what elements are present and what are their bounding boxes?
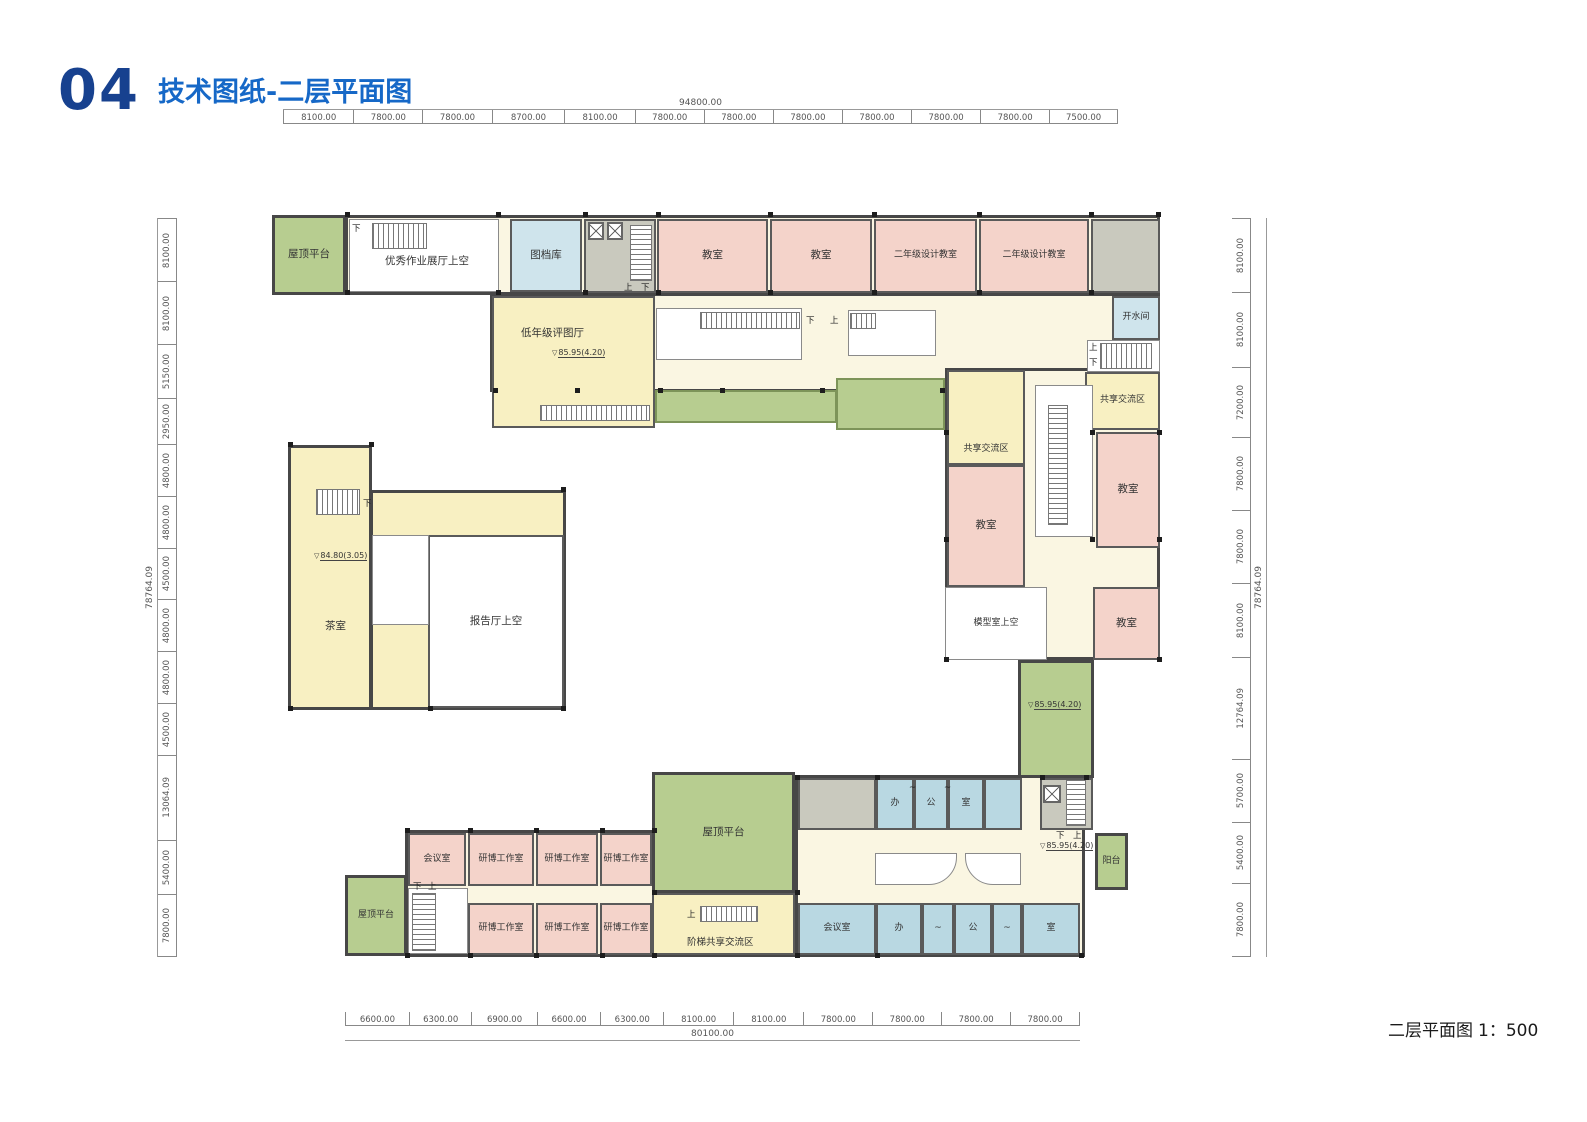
column-marker <box>977 212 982 217</box>
room-label: 研博工作室 <box>544 855 589 865</box>
column-marker <box>720 388 725 393</box>
column-marker <box>428 706 433 711</box>
dim-segment-value: 7800.00 <box>1236 529 1246 564</box>
dim-segment-value: 4500.00 <box>162 712 172 747</box>
elevation-value: 85.95(4.20) <box>558 348 605 358</box>
dimension-top-total: 94800.00 <box>283 98 1118 110</box>
dim-segment: 6600.00 <box>538 1012 602 1025</box>
room-roof-terrace-nw: 屋顶平台 <box>272 215 346 295</box>
dim-segment-value: 6900.00 <box>487 1015 522 1025</box>
dimension-left-total-label: 78764.09 <box>145 566 155 609</box>
room-label: ~ <box>934 924 942 934</box>
scale-note: 二层平面图1：500 <box>1388 1016 1543 1041</box>
dimension-bottom-total: 80100.00 <box>345 1029 1080 1041</box>
column-marker <box>561 706 566 711</box>
dim-segment: 8100.00 <box>664 1012 734 1025</box>
stair-icon <box>412 893 436 951</box>
small-void-room <box>372 535 429 625</box>
room-label-tea-room: 茶室 <box>325 618 346 633</box>
room-label: 公 <box>968 924 977 934</box>
room-label-stepped-shared-zone: 阶梯共享交流区 <box>687 934 754 948</box>
column-marker <box>977 290 982 295</box>
dim-segment: 8100.00 <box>283 110 354 123</box>
stair-icon <box>850 313 876 329</box>
stair-down-label: 下 <box>1056 829 1065 841</box>
room-label: 教室 <box>976 520 997 532</box>
dim-segment: 7800.00 <box>774 110 843 123</box>
dim-segment: 7800.00 <box>1232 884 1250 957</box>
column-marker <box>875 775 880 780</box>
column-marker <box>768 290 773 295</box>
dim-segment-value: 6300.00 <box>423 1015 458 1025</box>
dimension-top: 94800.00 8100.007800.007800.008700.00810… <box>283 98 1118 124</box>
stair-icon <box>700 312 800 329</box>
dimension-right: 8100.008100.007200.007800.007800.008100.… <box>1232 218 1267 957</box>
dim-segment-value: 7800.00 <box>162 908 172 943</box>
green-roof-band-1 <box>655 390 837 423</box>
dimension-left: 78764.09 8100.008100.005150.002950.00480… <box>142 218 177 957</box>
stair-icon <box>540 405 650 421</box>
column-marker <box>1084 775 1089 780</box>
dim-segment-value: 7800.00 <box>371 113 406 123</box>
tea-room-west-strip <box>288 445 372 710</box>
dimension-bottom: 6600.006300.006900.006600.006300.008100.… <box>345 1012 1080 1041</box>
elevation-triangle-icon: ▽ <box>1040 842 1045 850</box>
elevation-mark: ▽85.95(4.20) <box>552 348 605 357</box>
dim-segment: 7800.00 <box>636 110 705 123</box>
dim-segment-value: 7800.00 <box>1027 1015 1062 1025</box>
dim-segment: 7800.00 <box>981 110 1050 123</box>
dim-segment-value: 12764.09 <box>1236 688 1246 729</box>
room-label: 室 <box>961 799 970 809</box>
dim-segment: 7800.00 <box>1011 1012 1080 1025</box>
column-marker <box>561 487 566 492</box>
room-label-exhibition: 优秀作业展厅上空 <box>385 253 469 268</box>
dim-segment: 2950.00 <box>158 399 176 445</box>
dim-segment-value: 7800.00 <box>721 113 756 123</box>
column-marker <box>1157 537 1162 542</box>
column-marker <box>468 828 473 833</box>
room-label: 模型室上空 <box>973 619 1018 629</box>
dim-segment-value: 6600.00 <box>360 1015 395 1025</box>
stair-down-label: 下 <box>641 281 650 293</box>
stair-down-label: 下 <box>363 497 372 509</box>
dim-segment: 8100.00 <box>158 218 176 282</box>
dim-segment: 5400.00 <box>1232 823 1250 885</box>
dimension-left-total: 78764.09 <box>142 218 158 957</box>
stair-icon <box>1048 405 1068 525</box>
dim-segment: 4800.00 <box>158 445 176 497</box>
column-marker <box>288 706 293 711</box>
room-label: 报告厅上空 <box>470 616 523 628</box>
stair-icon <box>316 489 360 515</box>
room-studio-4: 研博工作室 <box>468 903 534 955</box>
dim-segment: 8100.00 <box>1232 218 1250 293</box>
stair-down-label: 下 <box>1089 356 1098 368</box>
door-swing-mark: ~ <box>909 783 916 793</box>
dim-segment-value: 7800.00 <box>652 113 687 123</box>
dim-segment: 7800.00 <box>423 110 492 123</box>
dim-segment: 4800.00 <box>158 497 176 549</box>
elevation-triangle-icon: ▽ <box>552 349 557 357</box>
room-label: 二年级设计教室 <box>1002 251 1065 261</box>
room-label: 研博工作室 <box>478 924 523 934</box>
dim-segment-value: 7800.00 <box>821 1015 856 1025</box>
dim-segment-value: 8100.00 <box>1236 238 1246 273</box>
room-label: 开水间 <box>1122 313 1149 323</box>
dim-segment-value: 7200.00 <box>1236 385 1246 420</box>
column-marker <box>795 953 800 958</box>
floor-plan-page: 04 技术图纸-二层平面图 94800.00 8100.007800.00780… <box>0 0 1587 1122</box>
column-marker <box>656 212 661 217</box>
room-water-room: 开水间 <box>1112 296 1160 340</box>
elevation-mark: ▽85.95(4.20) <box>1040 841 1093 850</box>
room-label: 办 <box>894 924 903 934</box>
column-marker <box>405 953 410 958</box>
dim-segment: 5150.00 <box>158 345 176 398</box>
column-marker <box>493 388 498 393</box>
stair-up-label: 上 <box>1089 341 1098 353</box>
room-label: ~ <box>1003 924 1011 934</box>
hall-opening-1 <box>875 853 957 885</box>
dim-segment: 7800.00 <box>942 1012 1011 1025</box>
room-grade2-design-2: 二年级设计教室 <box>979 219 1089 293</box>
dim-segment-value: 8100.00 <box>1236 603 1246 638</box>
dim-segment: 4500.00 <box>158 704 176 755</box>
column-marker <box>600 953 605 958</box>
dim-segment: 7500.00 <box>1050 110 1118 123</box>
room-studio-5: 研博工作室 <box>536 903 598 955</box>
dim-segment: 8100.00 <box>158 282 176 345</box>
column-marker <box>345 290 350 295</box>
dim-segment-value: 4800.00 <box>162 660 172 695</box>
elevation-mark: ▽84.80(3.05) <box>314 551 367 560</box>
dim-segment-value: 4800.00 <box>162 453 172 488</box>
dim-segment: 8100.00 <box>1232 293 1250 367</box>
column-marker <box>795 890 800 895</box>
dim-segment: 7800.00 <box>1232 438 1250 511</box>
section-number: 04 <box>58 58 140 123</box>
scale-note-value: 1：500 <box>1478 1021 1538 1041</box>
dim-segment-value: 8100.00 <box>751 1015 786 1025</box>
dim-segment-value: 7800.00 <box>1236 456 1246 491</box>
room-roof-terrace-sw: 屋顶平台 <box>345 875 407 956</box>
room-classroom-3: 教室 <box>1096 432 1160 548</box>
column-marker <box>496 212 501 217</box>
dim-segment: 7800.00 <box>158 895 176 957</box>
column-marker <box>1157 430 1162 435</box>
elevator-icon <box>1043 785 1061 803</box>
room-label: 研博工作室 <box>603 924 648 934</box>
column-marker <box>656 290 661 295</box>
dim-segment-value: 7500.00 <box>1066 113 1101 123</box>
room-label: 室 <box>1046 924 1055 934</box>
column-marker <box>652 828 657 833</box>
dim-segment: 6300.00 <box>410 1012 473 1025</box>
room-office-6: ~ <box>922 903 954 955</box>
stair-up-label: 上 <box>624 281 633 293</box>
room-studio-6: 研博工作室 <box>600 903 652 955</box>
column-marker <box>1157 657 1162 662</box>
room-label: 研博工作室 <box>603 855 648 865</box>
column-marker <box>768 212 773 217</box>
green-roof-band-2 <box>836 378 945 430</box>
stair-down-label: 下 <box>806 314 815 326</box>
column-marker <box>575 388 580 393</box>
column-marker <box>369 442 374 447</box>
dimension-top-segments: 8100.007800.007800.008700.008100.007800.… <box>283 110 1118 124</box>
dim-segment-value: 4800.00 <box>162 505 172 540</box>
column-marker <box>944 430 949 435</box>
column-marker <box>583 212 588 217</box>
column-marker <box>534 953 539 958</box>
room-label: 教室 <box>702 250 723 262</box>
room-meeting-1: 会议室 <box>408 833 466 886</box>
dim-segment-value: 5400.00 <box>1236 835 1246 870</box>
dim-segment-value: 5150.00 <box>162 354 172 389</box>
dim-segment: 7800.00 <box>354 110 423 123</box>
stair-icon <box>1100 343 1152 369</box>
dimension-left-segments: 8100.008100.005150.002950.004800.004800.… <box>158 218 177 957</box>
room-shared-zone-e: 共享交流区 <box>947 370 1025 465</box>
dimension-right-segments: 8100.008100.007200.007800.007800.008100.… <box>1232 218 1251 957</box>
column-marker <box>820 388 825 393</box>
dim-segment: 13064.09 <box>158 756 176 841</box>
elevation-mark: ▽85.95(4.20) <box>1028 700 1081 709</box>
column-marker <box>875 953 880 958</box>
column-marker <box>872 290 877 295</box>
dim-segment-value: 8100.00 <box>1236 312 1246 347</box>
dim-segment: 7800.00 <box>873 1012 942 1025</box>
column-marker <box>534 828 539 833</box>
stair-up-label: 上 <box>687 908 696 920</box>
dimension-bottom-segments: 6600.006300.006900.006600.006300.008100.… <box>345 1012 1080 1026</box>
column-marker <box>795 775 800 780</box>
column-marker <box>872 212 877 217</box>
elevation-value: 85.95(4.20) <box>1046 841 1093 851</box>
room-office-8: ~ <box>992 903 1022 955</box>
room-studio-1: 研博工作室 <box>468 833 534 886</box>
column-marker <box>944 537 949 542</box>
column-marker <box>658 388 663 393</box>
room-label: 会议室 <box>823 924 850 934</box>
room-label: 共享交流区 <box>963 445 1008 455</box>
column-marker <box>652 890 657 895</box>
room-label: 会议室 <box>423 855 450 865</box>
stair-up-label: 上 <box>1073 829 1082 841</box>
room-label: 教室 <box>1116 618 1137 630</box>
room-balcony: 阳台 <box>1095 833 1128 890</box>
dim-segment-value: 7800.00 <box>890 1015 925 1025</box>
dim-segment-value: 2950.00 <box>162 404 172 439</box>
stair-icon <box>700 906 758 922</box>
room-label: 图档库 <box>530 250 562 262</box>
dim-segment-value: 5700.00 <box>1236 773 1246 808</box>
dim-segment: 7800.00 <box>843 110 912 123</box>
stair-icon <box>1066 780 1086 826</box>
stair-icon <box>630 225 652 281</box>
dim-segment-value: 4800.00 <box>162 608 172 643</box>
room-office-7: 公 <box>954 903 992 955</box>
room-label: 屋顶平台 <box>703 827 745 839</box>
room-label: 共享交流区 <box>1100 396 1145 406</box>
room-label: 教室 <box>1118 484 1139 496</box>
dim-segment: 4800.00 <box>158 652 176 704</box>
column-marker <box>940 388 945 393</box>
green-link-corridor <box>1018 660 1094 778</box>
dim-segment-value: 6600.00 <box>551 1015 586 1025</box>
dim-segment-value: 8100.00 <box>162 296 172 331</box>
stair-down-label: 下 <box>352 222 361 234</box>
room-shared-zone-ne: 共享交流区 <box>1085 372 1160 430</box>
room-classroom-5: 教室 <box>1093 587 1160 660</box>
dim-segment: 6900.00 <box>472 1012 537 1025</box>
column-marker <box>1090 430 1095 435</box>
door-swing-mark: ~ <box>944 783 951 793</box>
elevator-icon <box>588 222 604 240</box>
column-marker <box>405 828 410 833</box>
elevation-triangle-icon: ▽ <box>1028 701 1033 709</box>
room-model-room-void: 模型室上空 <box>945 587 1047 660</box>
room-roof-terrace-s: 屋顶平台 <box>652 772 795 893</box>
dim-segment: 7800.00 <box>705 110 774 123</box>
dim-segment: 12764.09 <box>1232 658 1250 760</box>
dim-segment: 7200.00 <box>1232 368 1250 438</box>
dim-segment-value: 8100.00 <box>162 233 172 268</box>
dim-segment: 6300.00 <box>601 1012 664 1025</box>
column-marker <box>496 290 501 295</box>
column-marker <box>345 212 350 217</box>
dim-segment-value: 13064.09 <box>162 777 172 818</box>
room-grade2-design-1: 二年级设计教室 <box>874 219 977 293</box>
toilet-core-south <box>798 778 876 830</box>
dim-segment-value: 7800.00 <box>928 113 963 123</box>
room-office-2: 公 <box>914 778 948 830</box>
dim-segment-value: 8100.00 <box>582 113 617 123</box>
room-label: 二年级设计教室 <box>894 251 957 261</box>
dim-segment-value: 7800.00 <box>859 113 894 123</box>
dim-segment: 5400.00 <box>158 841 176 895</box>
dim-segment-value: 5400.00 <box>162 850 172 885</box>
room-label: 屋顶平台 <box>358 911 394 921</box>
elevation-triangle-icon: ▽ <box>314 552 319 560</box>
dim-segment: 5700.00 <box>1232 760 1250 823</box>
stair-up-label: 上 <box>428 880 437 892</box>
stair-icon <box>372 223 427 249</box>
room-label: 教室 <box>811 250 832 262</box>
dim-segment: 6600.00 <box>345 1012 410 1025</box>
column-marker <box>583 290 588 295</box>
dim-segment: 8100.00 <box>565 110 635 123</box>
room-label: 办 <box>890 799 899 809</box>
dim-segment-value: 6300.00 <box>615 1015 650 1025</box>
stair-down-label: 下 <box>413 880 422 892</box>
elevator-icon <box>607 222 623 240</box>
dim-segment-value: 7800.00 <box>959 1015 994 1025</box>
column-marker <box>288 442 293 447</box>
dim-segment: 7800.00 <box>912 110 981 123</box>
dim-segment: 8700.00 <box>493 110 566 123</box>
room-classroom-1: 教室 <box>657 219 768 293</box>
column-marker <box>1089 290 1094 295</box>
room-label: 阳台 <box>1102 857 1120 867</box>
dim-segment: 7800.00 <box>804 1012 873 1025</box>
room-archive: 图档库 <box>510 219 582 292</box>
dim-segment-value: 7800.00 <box>790 113 825 123</box>
room-label-review-hall: 低年级评图厅 <box>521 325 584 340</box>
dim-segment-value: 4500.00 <box>162 556 172 591</box>
dim-segment: 8100.00 <box>1232 584 1250 658</box>
dim-segment-value: 8100.00 <box>301 113 336 123</box>
room-label: 屋顶平台 <box>288 249 330 261</box>
room-office-3: 室 <box>948 778 984 830</box>
room-label: 研博工作室 <box>478 855 523 865</box>
elevation-value: 85.95(4.20) <box>1034 700 1081 710</box>
dimension-right-total-label: 78764.09 <box>1254 566 1264 609</box>
column-marker <box>1079 953 1084 958</box>
room-label: 公 <box>926 799 935 809</box>
stair-up-label: 上 <box>830 314 839 326</box>
dim-segment-value: 7800.00 <box>1236 902 1246 937</box>
room-meeting-2: 会议室 <box>798 903 876 955</box>
room-studio-3: 研博工作室 <box>600 833 652 886</box>
column-marker <box>1040 775 1045 780</box>
column-marker <box>944 657 949 662</box>
room-office-4 <box>984 778 1022 830</box>
dim-segment-value: 8100.00 <box>681 1015 716 1025</box>
dim-segment: 8100.00 <box>734 1012 804 1025</box>
column-marker <box>600 828 605 833</box>
room-classroom-2: 教室 <box>770 219 872 293</box>
toilet-core-north <box>1091 219 1160 293</box>
dim-segment: 4500.00 <box>158 549 176 600</box>
dim-segment-value: 8700.00 <box>511 113 546 123</box>
room-label: 研博工作室 <box>544 924 589 934</box>
dim-segment: 7800.00 <box>1232 511 1250 584</box>
column-marker <box>1090 537 1095 542</box>
dim-segment-value: 7800.00 <box>998 113 1033 123</box>
room-office-5: 办 <box>876 903 922 955</box>
scale-note-label: 二层平面图 <box>1388 1021 1473 1041</box>
dim-segment-value: 7800.00 <box>440 113 475 123</box>
room-office-9: 室 <box>1022 903 1080 955</box>
column-marker <box>1156 212 1161 217</box>
room-studio-2: 研博工作室 <box>536 833 598 886</box>
room-lecture-hall-void: 报告厅上空 <box>428 535 564 708</box>
column-marker <box>652 953 657 958</box>
column-marker <box>468 953 473 958</box>
dim-segment: 4800.00 <box>158 600 176 652</box>
elevation-value: 84.80(3.05) <box>320 551 367 561</box>
dimension-right-total: 78764.09 <box>1251 218 1267 957</box>
column-marker <box>1089 212 1094 217</box>
room-classroom-4: 教室 <box>947 465 1025 587</box>
